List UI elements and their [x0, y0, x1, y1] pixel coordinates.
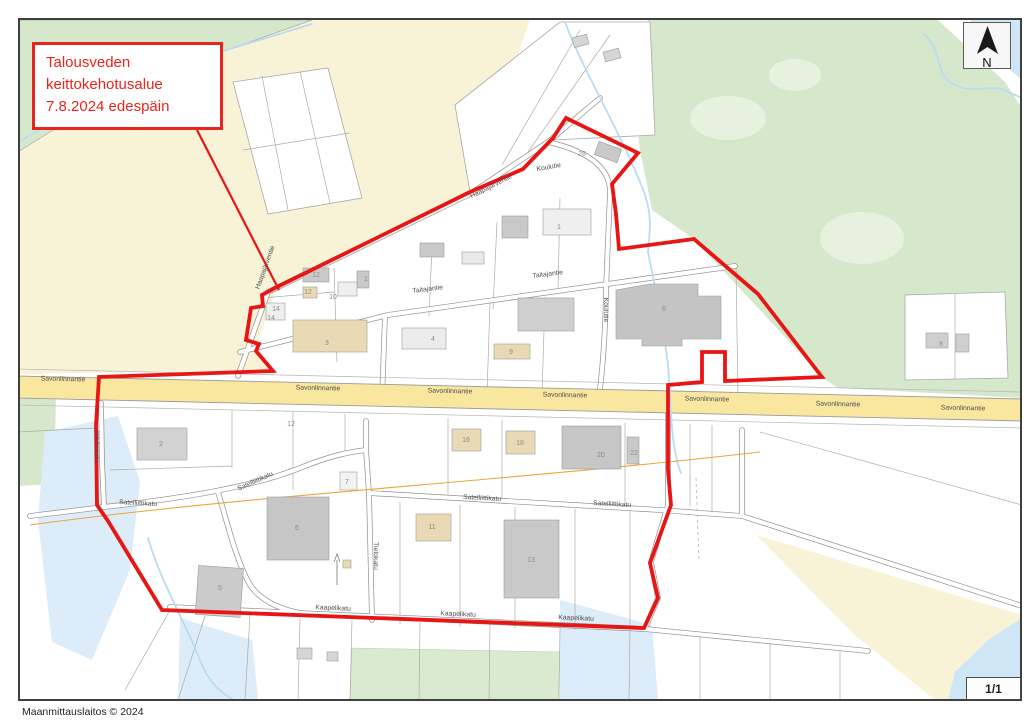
- forest-clearing: [769, 59, 821, 91]
- parcel-number: 12: [312, 272, 320, 279]
- street-label: Johdinkatu: [93, 430, 100, 463]
- parcel-number: 1: [557, 224, 561, 231]
- building: [343, 560, 351, 568]
- parcel-number: 12: [304, 289, 312, 296]
- building: [543, 209, 591, 235]
- building: [502, 216, 528, 238]
- building: [420, 243, 444, 257]
- parcel-number: 22: [630, 450, 638, 457]
- advisory-line-2: keittokehotusalue: [46, 74, 220, 96]
- building: [562, 426, 621, 469]
- building: [462, 252, 484, 264]
- parcel-number: 5: [218, 585, 222, 592]
- parcel-number: 16: [462, 437, 470, 444]
- map-page: SavonlinnantieSavonlinnantieSavonlinnant…: [0, 0, 1024, 726]
- building: [402, 328, 446, 349]
- parcel-number: 1: [364, 276, 368, 283]
- building: [926, 333, 948, 348]
- street-label: Tietokatu: [372, 542, 379, 570]
- advisory-line-1: Talousveden: [46, 52, 220, 74]
- building: [297, 648, 312, 659]
- park-area: [350, 648, 560, 699]
- parcel-number: 20: [597, 452, 605, 459]
- page-indicator: 1/1: [966, 677, 1021, 700]
- parcel-number: 6: [662, 306, 666, 313]
- building: [338, 282, 357, 296]
- parcel-number: 7: [345, 479, 349, 486]
- parcel-number: 18: [516, 440, 524, 447]
- parcel-number: 3: [325, 340, 329, 347]
- parcel-number: 10: [329, 294, 337, 301]
- attribution: Maanmittauslaitos © 2024: [22, 706, 144, 718]
- north-arrow-icon: [965, 23, 1010, 55]
- parcel-number: 14: [272, 306, 280, 313]
- parcel-number: 8: [939, 341, 943, 348]
- street-label: Savonlinnantie: [543, 391, 588, 399]
- parcel-number: 9: [509, 349, 513, 356]
- advisory-line-3: 7.8.2024 edespäin: [46, 96, 220, 118]
- street-label: Savonlinnantie: [41, 375, 86, 383]
- building: [956, 334, 969, 352]
- street-label: Savonlinnantie: [816, 400, 861, 408]
- parcel-number: 14: [267, 315, 275, 322]
- street-label: Savonlinnantie: [296, 384, 341, 392]
- building: [293, 320, 367, 352]
- forest-clearing: [690, 96, 766, 140]
- parcel-number: 6: [295, 525, 299, 532]
- parcel-number: 28: [578, 151, 586, 158]
- street-label: Koulutie: [602, 298, 609, 323]
- street-label: Savonlinnantie: [428, 387, 473, 395]
- parcel-number: 11: [428, 524, 435, 531]
- street-label: Savonlinnantie: [941, 404, 986, 412]
- forest-clearing: [820, 212, 904, 264]
- street-label: Savonlinnantie: [685, 395, 730, 403]
- parcel-number: 12: [287, 421, 295, 428]
- parcel-number: 13: [527, 557, 535, 564]
- north-indicator: N: [963, 22, 1011, 69]
- building: [518, 298, 574, 331]
- parcel-number: 2: [159, 441, 163, 448]
- parcel-number: 4: [431, 336, 435, 343]
- north-label: N: [964, 58, 1010, 68]
- advisory-label-box: Talousveden keittokehotusalue 7.8.2024 e…: [32, 42, 223, 130]
- building: [327, 652, 338, 661]
